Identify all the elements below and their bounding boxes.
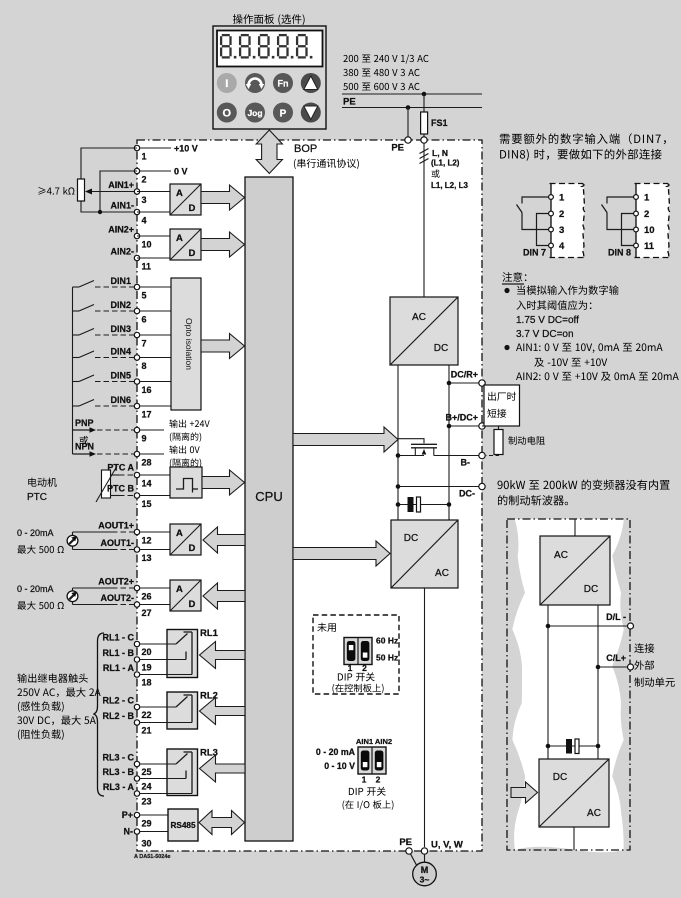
svg-text:0 V: 0 V: [174, 167, 188, 177]
svg-text:5: 5: [142, 291, 147, 301]
svg-text:AC: AC: [554, 550, 568, 561]
svg-text:A DA51-5024e: A DA51-5024e: [134, 854, 170, 860]
svg-text:1.75 V DC=off: 1.75 V DC=off: [516, 315, 579, 326]
svg-text:PTC: PTC: [27, 492, 47, 503]
svg-text:7: 7: [142, 339, 147, 349]
svg-text:Jog: Jog: [247, 108, 262, 118]
svg-text:1: 1: [644, 193, 650, 204]
svg-text:25: 25: [142, 767, 152, 777]
svg-text:AIN1-: AIN1-: [110, 201, 134, 211]
svg-text:D/L -: D/L -: [606, 612, 626, 622]
svg-text:21: 21: [142, 726, 152, 736]
svg-text:A: A: [176, 584, 183, 595]
svg-text:+10 V: +10 V: [174, 144, 198, 154]
svg-text:DIN 8: DIN 8: [608, 248, 631, 258]
svg-text:16: 16: [142, 385, 152, 395]
svg-text:12: 12: [142, 536, 152, 546]
svg-text:23: 23: [142, 797, 152, 807]
svg-text:2: 2: [362, 663, 367, 673]
svg-text:PTC B: PTC B: [107, 484, 135, 494]
svg-text:29: 29: [142, 819, 152, 829]
svg-text:1: 1: [142, 152, 147, 162]
svg-text:DIN3: DIN3: [110, 324, 131, 334]
svg-text:DIN 7: DIN 7: [523, 248, 546, 258]
svg-text:3.7 V DC=on: 3.7 V DC=on: [516, 329, 574, 340]
svg-text:Fn: Fn: [278, 79, 289, 89]
svg-text:24: 24: [142, 782, 152, 792]
svg-text:AOUT1-: AOUT1-: [101, 538, 135, 548]
svg-text:DC: DC: [404, 533, 418, 544]
svg-text:AIN1: AIN1: [356, 737, 374, 746]
svg-text:28: 28: [142, 458, 152, 468]
svg-text:11: 11: [644, 241, 655, 252]
svg-text:PE: PE: [399, 837, 412, 848]
svg-text:D: D: [189, 203, 196, 214]
svg-text:8: 8: [142, 361, 147, 371]
svg-text:I: I: [225, 78, 228, 90]
svg-text:DIN2: DIN2: [110, 300, 131, 310]
svg-text:30: 30: [142, 839, 152, 849]
svg-text:11: 11: [142, 262, 152, 272]
svg-text:FS1: FS1: [431, 118, 448, 128]
svg-text:RL1 - A: RL1 - A: [103, 663, 135, 673]
svg-text:26: 26: [142, 592, 152, 602]
svg-text:9: 9: [142, 434, 147, 444]
svg-text:22: 22: [142, 710, 152, 720]
svg-text:4: 4: [142, 216, 147, 226]
svg-text:U, V, W: U, V, W: [431, 840, 463, 851]
svg-text:AIN2+: AIN2+: [108, 225, 134, 235]
svg-text:DC: DC: [434, 343, 448, 354]
svg-text:27: 27: [142, 608, 152, 618]
svg-text:14: 14: [142, 479, 152, 489]
svg-text:RL2 - B: RL2 - B: [103, 711, 135, 721]
svg-text:PE: PE: [391, 143, 404, 154]
svg-text:RL1 - B: RL1 - B: [103, 648, 135, 658]
svg-text:4: 4: [559, 241, 565, 252]
svg-text:RS485: RS485: [170, 821, 195, 830]
svg-text:M: M: [421, 865, 429, 875]
svg-text:DIN1: DIN1: [110, 276, 131, 286]
svg-text:AOUT2+: AOUT2+: [98, 577, 134, 587]
svg-text:6: 6: [142, 315, 147, 325]
svg-text:3: 3: [142, 195, 147, 205]
svg-text:3~: 3~: [420, 875, 430, 885]
svg-text:RL1 - C: RL1 - C: [103, 633, 135, 643]
svg-text:AOUT1+: AOUT1+: [98, 521, 134, 531]
svg-text:N-: N-: [124, 827, 134, 837]
svg-text:L1, L2, L3: L1, L2, L3: [431, 181, 468, 190]
svg-text:D: D: [189, 248, 196, 259]
svg-text:AIN1+: AIN1+: [108, 180, 134, 190]
svg-text:PNP: PNP: [75, 418, 94, 428]
svg-text:17: 17: [142, 410, 152, 420]
svg-text:3: 3: [559, 225, 564, 236]
svg-text:DIN4: DIN4: [110, 347, 131, 357]
svg-text:0 - 20 mA: 0 - 20 mA: [316, 747, 356, 757]
svg-text:RL3 - B: RL3 - B: [103, 767, 135, 777]
svg-text:DIN5: DIN5: [110, 371, 131, 381]
svg-text:RL3 - C: RL3 - C: [103, 753, 135, 763]
svg-text:O: O: [223, 108, 232, 120]
svg-text:DC: DC: [584, 584, 598, 595]
svg-text:AIN2-: AIN2-: [110, 247, 134, 257]
svg-text:DC/R+: DC/R+: [451, 370, 478, 380]
svg-text:AC: AC: [587, 808, 601, 819]
svg-text:1: 1: [559, 193, 565, 204]
svg-text:13: 13: [142, 553, 152, 563]
svg-text:1: 1: [362, 775, 367, 785]
svg-text:1: 1: [348, 663, 353, 673]
svg-text:0 - 20mA: 0 - 20mA: [17, 528, 54, 538]
svg-text:18: 18: [142, 678, 152, 688]
svg-text:L, N: L, N: [432, 148, 448, 158]
svg-text:RL1: RL1: [200, 628, 219, 639]
svg-text:50 Hz: 50 Hz: [376, 653, 398, 663]
svg-text:10: 10: [142, 240, 152, 250]
svg-text:AC: AC: [412, 312, 426, 323]
svg-text:2: 2: [142, 175, 147, 185]
svg-text:DC: DC: [553, 772, 567, 783]
svg-text:0 - 20mA: 0 - 20mA: [17, 584, 54, 594]
svg-text:P: P: [280, 109, 287, 120]
svg-text:15: 15: [142, 499, 152, 509]
svg-text:RL2 - C: RL2 - C: [103, 696, 135, 706]
svg-text:A: A: [176, 233, 183, 244]
svg-text:DIN6: DIN6: [110, 395, 131, 405]
svg-text:AOUT2-: AOUT2-: [101, 593, 135, 603]
svg-text:A: A: [176, 188, 183, 199]
svg-text:0 - 10 V: 0 - 10 V: [324, 761, 355, 771]
svg-text:BOP: BOP: [294, 143, 317, 155]
svg-text:CPU: CPU: [255, 489, 282, 504]
svg-text:20: 20: [142, 647, 152, 657]
svg-text:RL3 - A: RL3 - A: [103, 782, 135, 792]
svg-text:PTC A: PTC A: [107, 463, 134, 473]
svg-text:10: 10: [644, 225, 655, 236]
svg-text:D: D: [189, 543, 196, 554]
svg-text:PE: PE: [343, 97, 356, 108]
svg-text:A: A: [176, 528, 183, 539]
svg-text:B-: B-: [461, 458, 471, 468]
svg-text:2: 2: [559, 209, 564, 220]
svg-text:Opto isolation: Opto isolation: [184, 318, 194, 370]
svg-text:AIN2: AIN2: [375, 737, 392, 746]
svg-text:(L1, L2): (L1, L2): [431, 159, 460, 168]
svg-text:B+/DC+: B+/DC+: [445, 413, 478, 423]
svg-text:AC: AC: [435, 568, 449, 579]
svg-text:2: 2: [644, 209, 649, 220]
svg-text:D: D: [189, 599, 196, 610]
svg-text:19: 19: [142, 663, 152, 673]
svg-text:NPN: NPN: [75, 442, 94, 452]
svg-text:DC-: DC-: [459, 489, 475, 499]
svg-text:60 Hz: 60 Hz: [376, 636, 398, 646]
svg-text:P+: P+: [122, 810, 133, 820]
svg-text:C/L+: C/L+: [606, 653, 626, 663]
svg-text:2: 2: [376, 775, 381, 785]
